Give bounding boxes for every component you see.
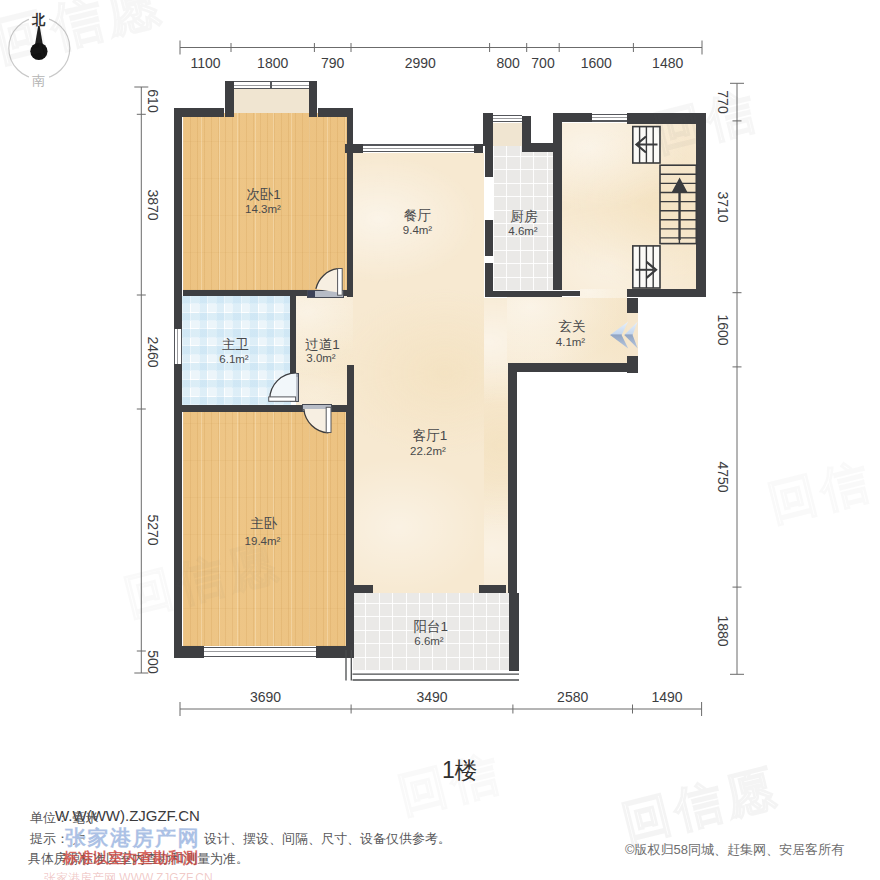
svg-text:南: 南 — [32, 73, 45, 88]
